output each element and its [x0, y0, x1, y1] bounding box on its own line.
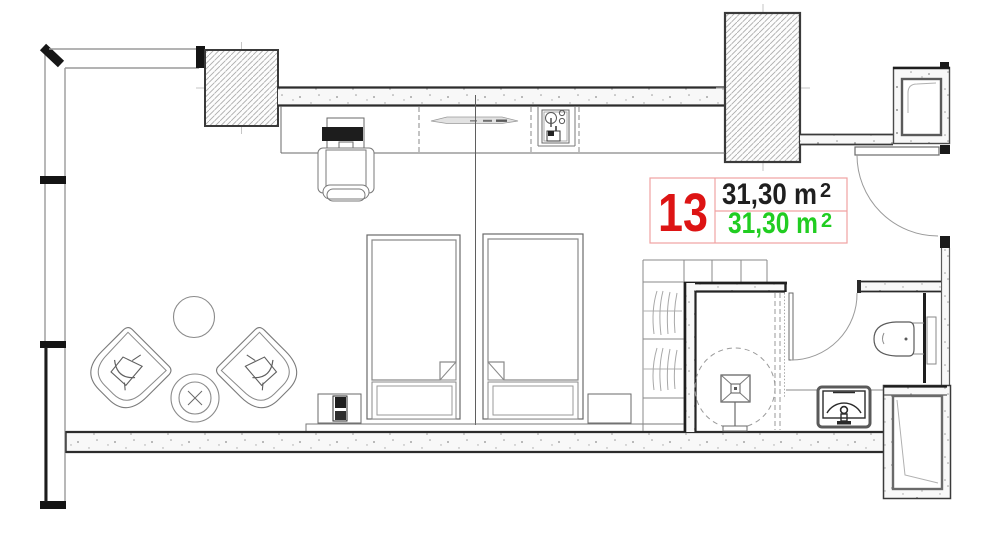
svg-text:31,30 m: 31,30 m: [728, 207, 818, 240]
svg-text:13: 13: [658, 183, 708, 243]
svg-text:2: 2: [820, 180, 831, 202]
svg-text:2: 2: [821, 210, 832, 232]
